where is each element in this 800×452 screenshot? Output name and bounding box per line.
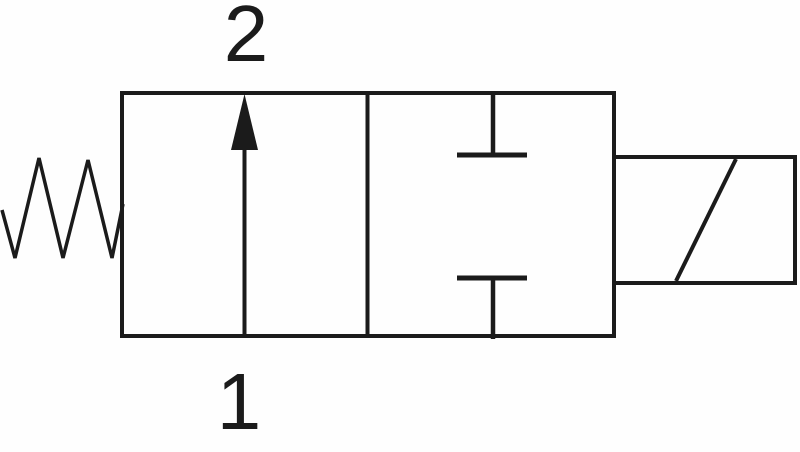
flow-arrow-up-icon: [231, 94, 258, 336]
port-label-bottom: 1: [217, 362, 262, 442]
valve-diagram: 2 1: [0, 0, 800, 452]
blocked-port-top-icon: [457, 93, 527, 155]
valve-body: [122, 93, 614, 336]
spring-icon: [2, 158, 123, 258]
solenoid-coil-icon: [614, 157, 795, 283]
blocked-port-bottom-icon: [457, 278, 527, 339]
valve-diagram-linework: [0, 0, 800, 452]
port-label-top: 2: [224, 0, 269, 74]
